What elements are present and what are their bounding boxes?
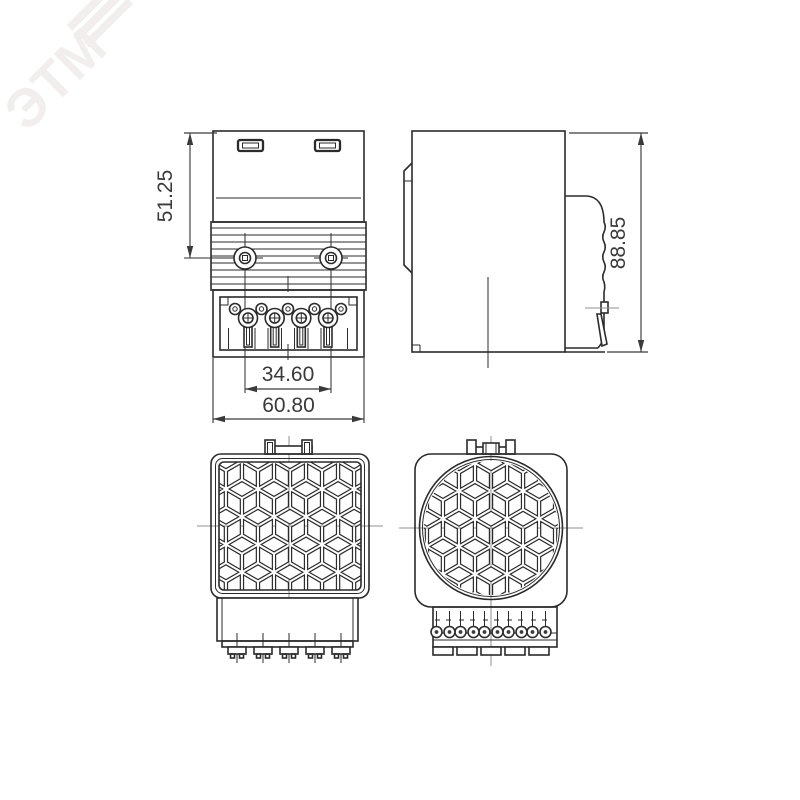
view-front [184,131,366,393]
view-side [404,131,619,368]
technical-drawing-page: ЭТМ [0,0,800,800]
dimension-terminal-pitch: 34.60 [245,363,331,392]
front-body-outline [213,131,364,222]
honeycomb-pattern-round [348,428,649,627]
honeycomb-pattern-square [147,426,448,625]
view-grille-round [348,428,649,666]
dimension-upper-height: 51.25 [154,133,217,258]
dim-label-overall-width: 60.80 [262,394,315,417]
front-screw-right [320,247,342,269]
dimension-overall-height: 88.85 [569,133,648,352]
side-din-clip [404,163,412,273]
dim-label-overall-height: 88.85 [607,217,630,270]
cover-lever [597,314,607,346]
view-grille-square [147,426,448,663]
front-slot-right [315,140,340,151]
dim-label-terminal-pitch: 34.60 [262,363,315,386]
front-screw-left [234,247,256,269]
drawing-canvas: ЭТМ [0,0,800,800]
watermark-logo: ЭТМ [0,0,133,142]
round-terminal-block [431,607,557,655]
dim-label-upper-height: 51.25 [154,170,177,223]
grille-body-band [217,598,358,647]
front-slot-left [238,140,263,151]
